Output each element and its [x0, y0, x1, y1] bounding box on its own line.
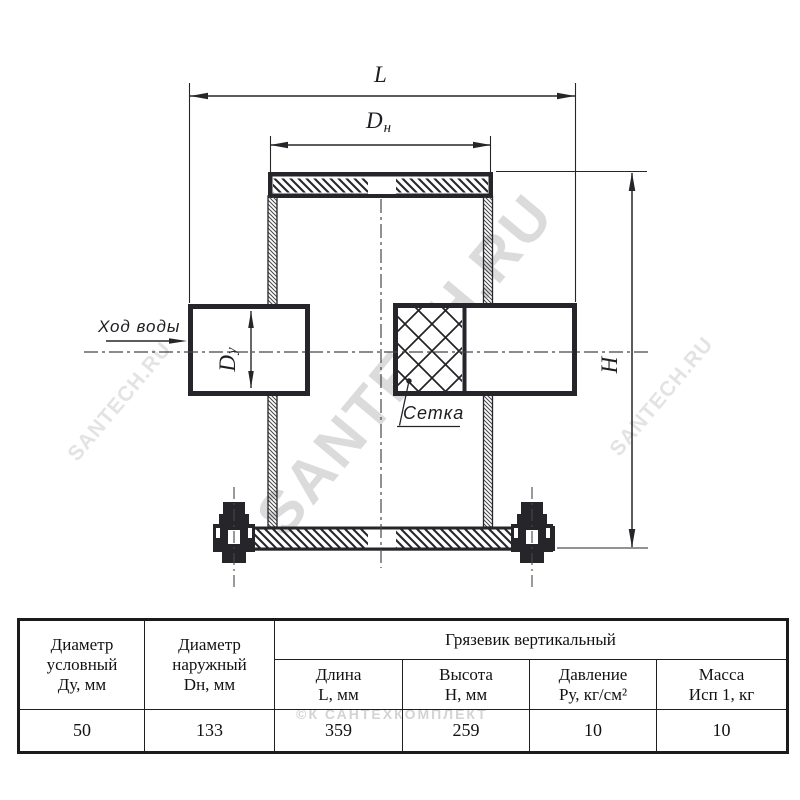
dim-label-L: L — [374, 62, 387, 88]
dim-label-H: H — [595, 343, 625, 387]
header-line: Dн, мм — [145, 675, 274, 695]
value-height: 259 — [403, 710, 530, 753]
value-diameter-nominal: 50 — [19, 710, 145, 753]
dim-label-Du: Dу — [212, 338, 244, 382]
spec-table: Диаметр условный Ду, мм Диаметр наружный… — [17, 618, 789, 754]
product-drawing-page: SANTECH.RU SANTECH.RU SANTECH.RU ©К САНТ… — [0, 0, 800, 800]
flow-arrow — [106, 338, 187, 344]
outlet-pipe — [396, 306, 575, 394]
technical-drawing — [0, 0, 800, 610]
header-line: Н, мм — [403, 685, 529, 705]
dim-label-Du-sub: у — [224, 347, 241, 354]
value-pressure: 10 — [530, 710, 657, 753]
header-line: Ду, мм — [20, 675, 144, 695]
header-line: Ру, кг/см² — [530, 685, 656, 705]
dim-label-Du-main: D — [215, 355, 241, 372]
header-line: Исп 1, кг — [657, 685, 786, 705]
value-diameter-outer: 133 — [145, 710, 275, 753]
bottom-flange — [213, 526, 555, 551]
header-mass: Масса Исп 1, кг — [657, 660, 788, 710]
header-line: L, мм — [275, 685, 402, 705]
value-length: 359 — [275, 710, 403, 753]
top-cap — [268, 172, 493, 198]
header-line: Масса — [657, 665, 786, 685]
header-line: Диаметр — [20, 635, 144, 655]
inlet-pipe — [191, 307, 308, 394]
header-diameter-nominal: Диаметр условный Ду, мм — [19, 620, 145, 710]
header-line: Давление — [530, 665, 656, 685]
mesh-label: Сетка — [403, 403, 464, 424]
header-diameter-outer: Диаметр наружный Dн, мм — [145, 620, 275, 710]
header-height: Высота Н, мм — [403, 660, 530, 710]
group-header-vertical-dirt-trap: Грязевик вертикальный — [275, 620, 788, 660]
header-line: Диаметр — [145, 635, 274, 655]
value-mass: 10 — [657, 710, 788, 753]
bolt-right — [511, 487, 553, 590]
dim-label-Dn-sub: н — [384, 120, 391, 136]
header-length: Длина L, мм — [275, 660, 403, 710]
header-line: наружный — [145, 655, 274, 675]
header-pressure: Давление Ру, кг/см² — [530, 660, 657, 710]
header-line: Длина — [275, 665, 402, 685]
mesh-screen — [398, 308, 462, 391]
dimension-Dn — [270, 136, 491, 172]
bolt-left — [213, 487, 255, 590]
dim-label-Dn: Dн — [366, 108, 390, 134]
dim-label-Dn-main: D — [366, 108, 383, 133]
flow-direction-label: Ход воды — [98, 317, 180, 337]
header-line: Высота — [403, 665, 529, 685]
header-line: условный — [20, 655, 144, 675]
